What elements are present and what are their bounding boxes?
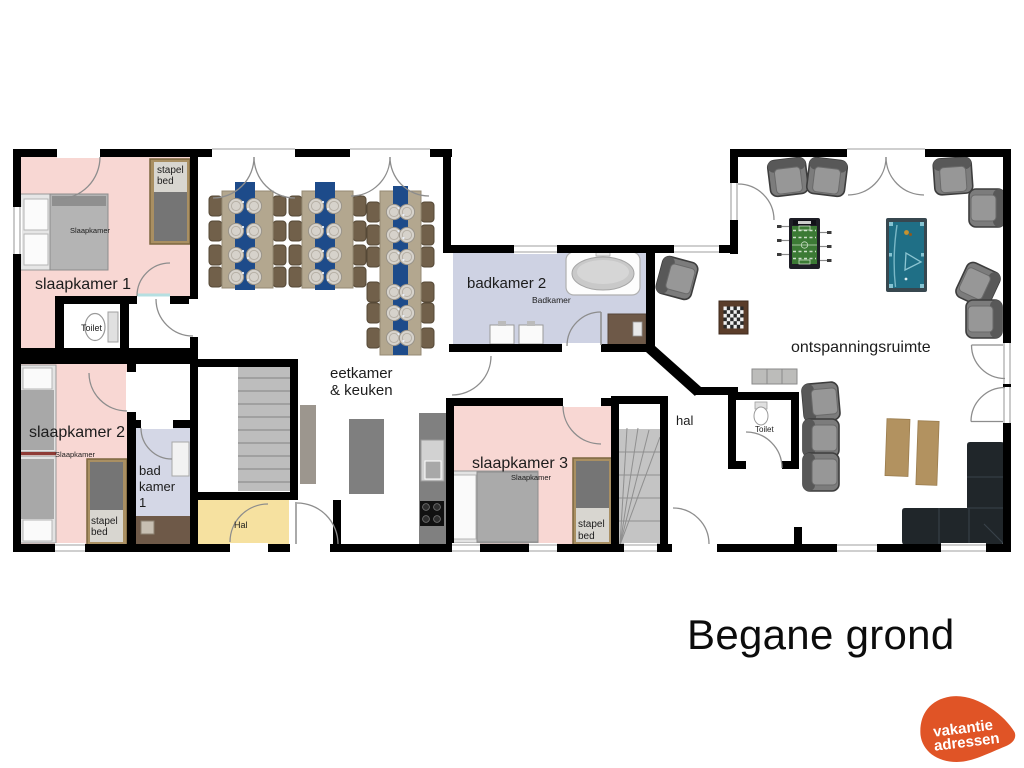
- svg-text:slaapkamer 1: slaapkamer 1: [35, 276, 131, 293]
- svg-text:ontspanningsruimte: ontspanningsruimte: [791, 339, 931, 356]
- svg-text:Badkamer: Badkamer: [532, 295, 571, 305]
- svg-text:kamer: kamer: [139, 479, 176, 494]
- svg-text:hal: hal: [676, 413, 693, 428]
- svg-text:1: 1: [139, 495, 146, 510]
- svg-text:stapel: stapel: [157, 165, 184, 176]
- svg-text:Begane grond: Begane grond: [687, 611, 955, 658]
- svg-text:badkamer 2: badkamer 2: [467, 275, 546, 292]
- svg-text:bed: bed: [157, 176, 174, 187]
- svg-text:Toilet: Toilet: [81, 323, 103, 333]
- svg-text:Hal: Hal: [234, 520, 248, 530]
- svg-text:bed: bed: [578, 531, 595, 542]
- svg-text:slaapkamer 2: slaapkamer 2: [29, 424, 125, 441]
- svg-text:Slaapkamer: Slaapkamer: [55, 450, 96, 459]
- svg-text:slaapkamer 3: slaapkamer 3: [472, 455, 568, 472]
- svg-text:stapel: stapel: [578, 519, 605, 530]
- svg-text:bed: bed: [91, 527, 108, 538]
- svg-text:Slaapkamer: Slaapkamer: [70, 226, 111, 235]
- svg-text:eetkamer: eetkamer: [330, 365, 393, 382]
- svg-text:bad: bad: [139, 463, 161, 478]
- svg-text:Slaapkamer: Slaapkamer: [511, 473, 552, 482]
- svg-text:stapel: stapel: [91, 516, 118, 527]
- svg-text:Toilet: Toilet: [755, 425, 774, 434]
- svg-text:& keuken: & keuken: [330, 382, 393, 399]
